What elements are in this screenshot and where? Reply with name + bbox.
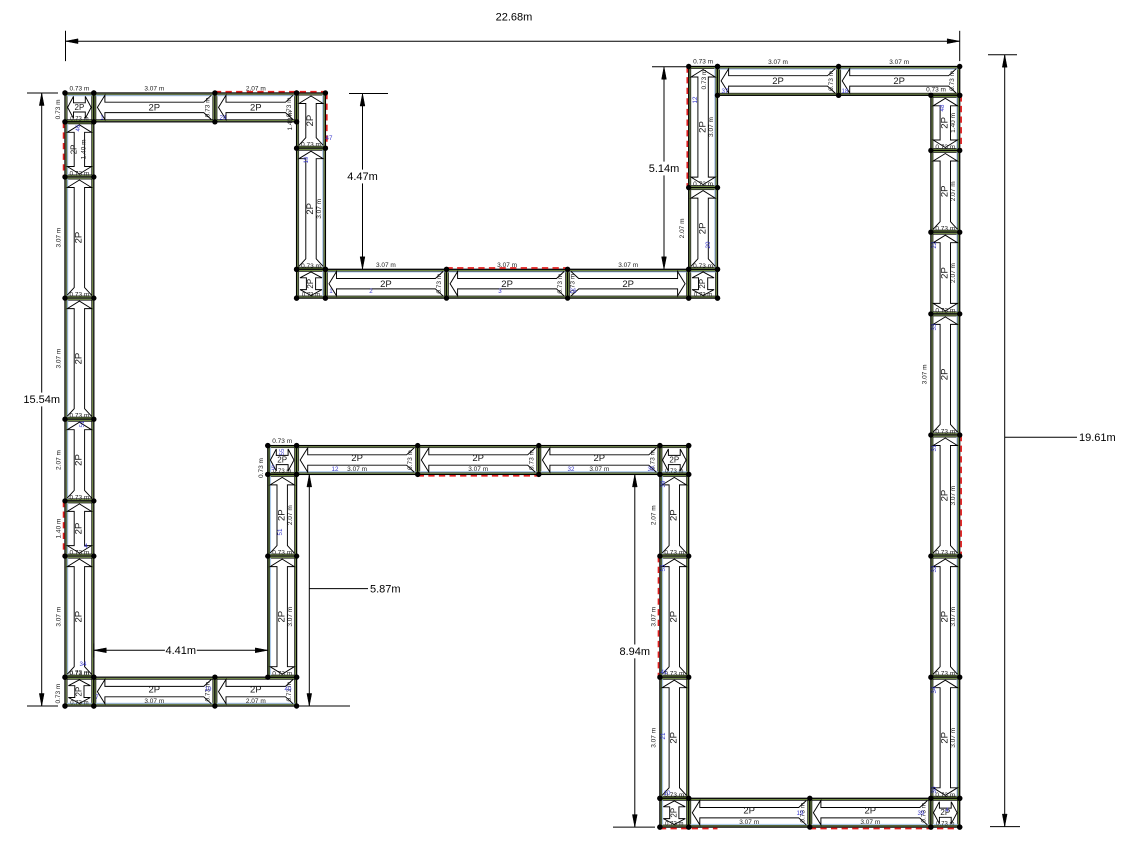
svg-text:3.07 m: 3.07 m	[589, 466, 609, 473]
svg-text:2P: 2P	[669, 456, 679, 465]
svg-text:2P: 2P	[940, 490, 951, 502]
svg-text:2P: 2P	[940, 369, 951, 381]
svg-text:0.73 m: 0.73 m	[70, 701, 88, 707]
svg-text:2P: 2P	[74, 353, 85, 365]
svg-text:30: 30	[931, 786, 938, 793]
svg-text:0.73 m: 0.73 m	[272, 671, 292, 678]
svg-text:3.07 m: 3.07 m	[56, 228, 63, 248]
svg-text:2.07 m: 2.07 m	[950, 181, 957, 201]
svg-text:1.40 m: 1.40 m	[56, 519, 63, 539]
svg-text:4: 4	[84, 543, 88, 550]
svg-text:34: 34	[931, 686, 938, 693]
svg-text:2P: 2P	[277, 456, 287, 465]
svg-text:0.73 m: 0.73 m	[701, 70, 708, 90]
svg-text:12: 12	[692, 96, 699, 103]
svg-text:39: 39	[918, 810, 925, 817]
svg-text:51: 51	[79, 420, 86, 427]
svg-text:2P: 2P	[940, 117, 951, 129]
svg-text:15.54m: 15.54m	[23, 394, 60, 406]
svg-text:34: 34	[80, 661, 87, 668]
svg-text:48: 48	[939, 104, 946, 111]
svg-text:2P: 2P	[276, 509, 287, 521]
svg-text:3.07 m: 3.07 m	[739, 819, 759, 826]
svg-text:3.07 m: 3.07 m	[347, 466, 367, 473]
svg-text:2.07 m: 2.07 m	[56, 450, 63, 470]
svg-text:0.73 m: 0.73 m	[528, 450, 535, 470]
svg-text:3.07 m: 3.07 m	[860, 819, 880, 826]
svg-text:0.73 m: 0.73 m	[55, 684, 62, 704]
svg-text:0.73 m: 0.73 m	[693, 59, 713, 66]
svg-text:0.73 m: 0.73 m	[926, 87, 946, 94]
svg-text:2P: 2P	[305, 115, 316, 127]
svg-text:22: 22	[931, 241, 938, 248]
svg-text:2.07 m: 2.07 m	[950, 263, 957, 283]
svg-text:5.14m: 5.14m	[649, 163, 680, 175]
svg-text:0.73 m: 0.73 m	[694, 293, 712, 299]
svg-text:2P: 2P	[743, 806, 755, 817]
svg-text:2P: 2P	[669, 509, 680, 521]
svg-text:2: 2	[369, 288, 373, 295]
svg-text:2P: 2P	[940, 732, 951, 744]
svg-text:0.73 m: 0.73 m	[69, 670, 89, 677]
svg-text:20: 20	[705, 241, 712, 248]
svg-text:2P: 2P	[622, 279, 634, 290]
svg-text:32: 32	[931, 565, 938, 572]
svg-text:2P: 2P	[940, 267, 951, 279]
svg-text:0.73 m: 0.73 m	[936, 822, 954, 828]
svg-text:2P: 2P	[74, 687, 83, 697]
svg-text:3.07 m: 3.07 m	[768, 59, 788, 66]
svg-text:3.07 m: 3.07 m	[950, 607, 957, 627]
svg-text:3.07 m: 3.07 m	[144, 86, 164, 93]
svg-text:3.07 m: 3.07 m	[950, 728, 957, 748]
svg-text:2P: 2P	[669, 732, 680, 744]
svg-text:0.73 m: 0.73 m	[949, 71, 956, 91]
svg-text:1: 1	[329, 288, 333, 295]
svg-text:2P: 2P	[75, 103, 85, 112]
svg-text:4.47m: 4.47m	[347, 171, 378, 183]
svg-text:2P: 2P	[940, 611, 951, 623]
svg-text:19.61m: 19.61m	[1079, 432, 1116, 444]
svg-text:51: 51	[277, 528, 284, 535]
svg-text:47: 47	[326, 135, 333, 142]
svg-text:2P: 2P	[250, 685, 262, 696]
svg-text:19: 19	[303, 156, 310, 163]
svg-text:19: 19	[797, 810, 804, 817]
svg-text:5.87m: 5.87m	[370, 584, 401, 596]
svg-text:12: 12	[332, 466, 339, 473]
svg-text:4.41m: 4.41m	[166, 645, 197, 657]
svg-text:2P: 2P	[148, 685, 160, 696]
svg-text:2P: 2P	[698, 279, 707, 289]
svg-text:0.73 m: 0.73 m	[693, 263, 713, 270]
svg-text:2P: 2P	[697, 223, 708, 235]
svg-text:2.07 m: 2.07 m	[246, 698, 266, 705]
svg-text:37: 37	[722, 88, 729, 95]
svg-text:2P: 2P	[669, 611, 680, 623]
svg-text:19: 19	[205, 686, 212, 693]
svg-text:3.07 m: 3.07 m	[650, 607, 657, 627]
svg-text:39: 39	[660, 480, 667, 487]
svg-text:2P: 2P	[74, 232, 85, 244]
svg-text:2P: 2P	[305, 203, 316, 215]
svg-text:26: 26	[570, 288, 577, 295]
svg-text:2P: 2P	[593, 453, 605, 464]
svg-text:2P: 2P	[74, 611, 85, 623]
svg-text:3.07 m: 3.07 m	[650, 728, 657, 748]
svg-text:3.07 m: 3.07 m	[950, 486, 957, 506]
svg-text:1: 1	[100, 115, 104, 122]
svg-text:0.73 m: 0.73 m	[665, 822, 683, 828]
svg-text:2P: 2P	[472, 453, 484, 464]
svg-text:2.07 m: 2.07 m	[650, 505, 657, 525]
svg-text:2P: 2P	[501, 279, 513, 290]
svg-text:2.07 m: 2.07 m	[287, 505, 294, 525]
svg-text:22.68m: 22.68m	[496, 12, 533, 24]
svg-text:2P: 2P	[940, 185, 951, 197]
svg-text:0.73 m: 0.73 m	[828, 71, 835, 91]
svg-text:4: 4	[945, 807, 949, 814]
svg-text:2.07 m: 2.07 m	[679, 218, 686, 238]
svg-text:0.73 m: 0.73 m	[258, 458, 265, 478]
svg-text:2P: 2P	[351, 453, 363, 464]
svg-text:2P: 2P	[148, 103, 160, 114]
svg-text:40: 40	[285, 686, 292, 693]
svg-text:32: 32	[568, 466, 575, 473]
svg-text:46: 46	[75, 124, 82, 131]
svg-text:2P: 2P	[74, 454, 85, 466]
svg-text:5: 5	[271, 465, 275, 472]
svg-text:3.07 m: 3.07 m	[921, 364, 928, 384]
svg-text:8.94m: 8.94m	[620, 646, 651, 658]
svg-text:0.73 m: 0.73 m	[272, 438, 292, 445]
svg-text:3.07 m: 3.07 m	[889, 59, 909, 66]
svg-text:35: 35	[648, 466, 655, 473]
svg-text:2P: 2P	[864, 806, 876, 817]
svg-text:31: 31	[931, 444, 938, 451]
svg-text:3.07 m: 3.07 m	[287, 607, 294, 627]
svg-text:3: 3	[498, 288, 502, 295]
svg-text:21: 21	[660, 732, 667, 739]
svg-text:2P: 2P	[250, 103, 262, 114]
svg-text:3.07 m: 3.07 m	[316, 199, 323, 219]
svg-text:2P: 2P	[669, 808, 678, 818]
svg-text:3.07 m: 3.07 m	[468, 466, 488, 473]
svg-text:33: 33	[931, 323, 938, 330]
svg-text:2P: 2P	[69, 145, 78, 155]
svg-text:10: 10	[664, 790, 671, 797]
svg-text:2P: 2P	[306, 279, 315, 289]
svg-text:2P: 2P	[697, 121, 708, 133]
svg-text:2P: 2P	[772, 76, 784, 87]
svg-text:3.07 m: 3.07 m	[708, 117, 715, 137]
svg-text:3.07 m: 3.07 m	[56, 607, 63, 627]
svg-text:1.40 m: 1.40 m	[287, 111, 294, 131]
svg-text:3.07 m: 3.07 m	[56, 349, 63, 369]
svg-text:24: 24	[220, 115, 227, 122]
svg-text:41: 41	[661, 669, 668, 676]
svg-text:2P: 2P	[276, 611, 287, 623]
svg-text:2P: 2P	[380, 279, 392, 290]
svg-text:3.07 m: 3.07 m	[618, 262, 638, 269]
svg-text:0.73 m: 0.73 m	[204, 97, 211, 117]
svg-text:0.73 m: 0.73 m	[407, 450, 414, 470]
svg-text:3.07 m: 3.07 m	[376, 262, 396, 269]
svg-text:0.73 m: 0.73 m	[302, 293, 320, 299]
svg-text:18: 18	[842, 88, 849, 95]
svg-text:2P: 2P	[74, 523, 85, 535]
svg-text:3.07 m: 3.07 m	[144, 698, 164, 705]
svg-text:53: 53	[660, 564, 667, 571]
svg-text:0.73 m: 0.73 m	[69, 86, 89, 93]
svg-text:55: 55	[279, 448, 286, 455]
svg-text:7: 7	[95, 694, 99, 701]
svg-text:1.40 m: 1.40 m	[80, 139, 87, 159]
svg-text:0.73 m: 0.73 m	[436, 274, 443, 294]
svg-text:0.73 m: 0.73 m	[55, 99, 62, 119]
svg-text:1.40 m: 1.40 m	[950, 113, 957, 133]
svg-text:0.73 m: 0.73 m	[557, 274, 564, 294]
svg-text:2P: 2P	[893, 76, 905, 87]
